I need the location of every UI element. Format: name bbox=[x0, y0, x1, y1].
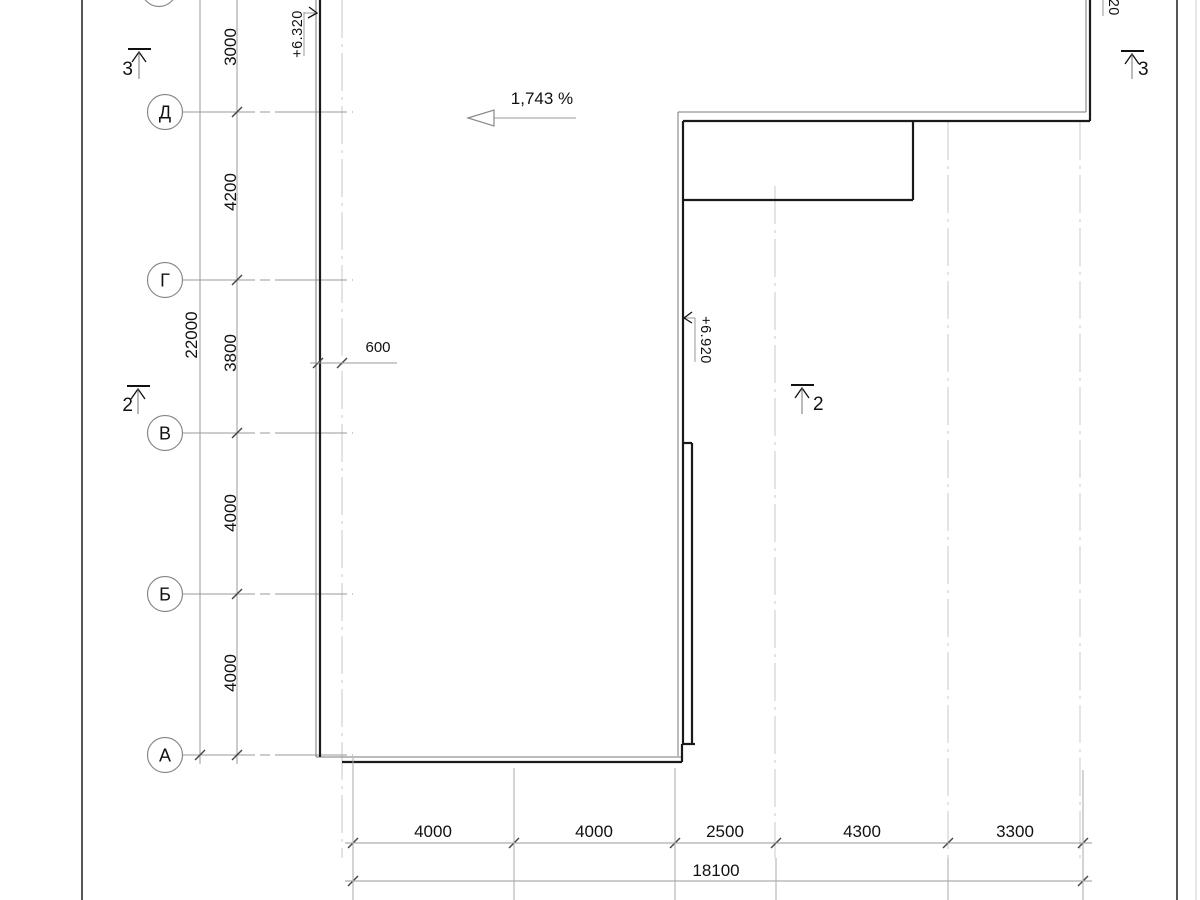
hdim-overall-18100: 18100 bbox=[692, 861, 739, 880]
section-label-3-left: 3 bbox=[122, 59, 133, 80]
axis-label-b: Б bbox=[159, 585, 171, 605]
section-label-2-left: 2 bbox=[122, 395, 133, 416]
hdim-2500: 2500 bbox=[706, 822, 744, 841]
grid-dashed-lines bbox=[342, 0, 1080, 858]
axis-label-a: А bbox=[159, 746, 171, 766]
slope-arrow-icon bbox=[468, 110, 494, 126]
section-marker-3-left: 3 bbox=[122, 49, 151, 80]
axis-circle-partial bbox=[142, 0, 177, 7]
horizontal-dimension-labels: 4000 4000 2500 4300 3300 18100 bbox=[414, 822, 1034, 880]
elevation-value-top-left: +6.320 bbox=[290, 10, 306, 58]
hdim-4000-2: 4000 bbox=[575, 822, 613, 841]
vdim-4000-upper: 4000 bbox=[221, 494, 240, 532]
slope-label: 1,743 % bbox=[511, 89, 573, 108]
elevation-mark-top-left: +6.320 bbox=[290, 7, 317, 58]
drawing-sheet: Д Г В Б А bbox=[0, 0, 1200, 900]
sheet-border-lines bbox=[82, 0, 1196, 900]
vertical-dimension-labels: 3000 4200 3800 4000 4000 22000 bbox=[182, 28, 240, 692]
roof-plan-drawing: Д Г В Б А bbox=[0, 0, 1200, 900]
elevation-value-top-right: +6.920 bbox=[1105, 0, 1121, 16]
offset-dimension-600: 600 bbox=[310, 339, 397, 363]
slope-annotation: 1,743 % bbox=[468, 89, 576, 126]
section-marker-2-left: 2 bbox=[122, 386, 150, 416]
elevation-mark-middle: +6.920 bbox=[684, 312, 713, 364]
dimension-tick-marks bbox=[195, 107, 1088, 886]
elevation-value-middle: +6.920 bbox=[697, 316, 713, 364]
offset-dim-label: 600 bbox=[365, 339, 390, 356]
section-marker-3-right: 3 bbox=[1121, 51, 1149, 80]
vdim-4000-lower: 4000 bbox=[221, 654, 240, 692]
hdim-3300: 3300 bbox=[996, 822, 1034, 841]
axis-label-g: Г bbox=[160, 271, 170, 291]
roof-projection-rectangle bbox=[683, 121, 913, 200]
section-label-3-right: 3 bbox=[1138, 59, 1149, 80]
vdim-overall-22000: 22000 bbox=[182, 311, 201, 358]
axis-label-v: В bbox=[159, 424, 171, 444]
axis-row-leader-lines bbox=[183, 112, 353, 755]
vertical-dimension-lines bbox=[200, 0, 237, 764]
hdim-4000-1: 4000 bbox=[414, 822, 452, 841]
building-outline-thin bbox=[316, 0, 1086, 757]
axis-label-d: Д bbox=[159, 103, 171, 123]
section-label-2-right: 2 bbox=[813, 394, 824, 415]
vdim-3800: 3800 bbox=[221, 334, 240, 372]
vdim-3000: 3000 bbox=[221, 28, 240, 66]
vdim-4200: 4200 bbox=[221, 173, 240, 211]
hdim-4300: 4300 bbox=[843, 822, 881, 841]
section-marker-2-right: 2 bbox=[791, 385, 824, 415]
elevation-mark-top-right: +6.920 bbox=[1103, 0, 1121, 16]
building-outline-thick bbox=[320, 0, 1090, 762]
